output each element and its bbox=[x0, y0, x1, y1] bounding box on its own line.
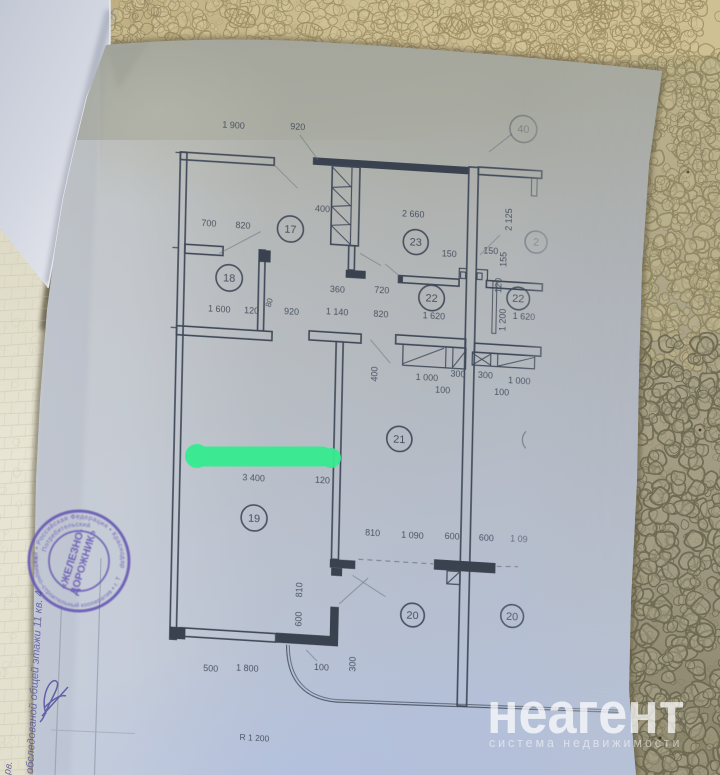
svg-text:120: 120 bbox=[244, 305, 259, 316]
svg-text:120: 120 bbox=[493, 278, 503, 294]
svg-text:300: 300 bbox=[478, 370, 493, 381]
svg-text:18: 18 bbox=[223, 272, 235, 285]
svg-text:150: 150 bbox=[483, 245, 498, 256]
svg-text:23: 23 bbox=[410, 236, 422, 249]
svg-text:500: 500 bbox=[203, 663, 218, 674]
svg-text:1 000: 1 000 bbox=[416, 372, 439, 383]
svg-text:1 900: 1 900 bbox=[222, 119, 245, 130]
svg-text:920: 920 bbox=[284, 306, 299, 317]
svg-text:120: 120 bbox=[315, 475, 330, 486]
svg-text:R 1 200: R 1 200 bbox=[239, 732, 269, 744]
svg-text:19: 19 bbox=[248, 512, 260, 525]
svg-text:810: 810 bbox=[365, 528, 380, 539]
svg-text:2 125: 2 125 bbox=[503, 208, 513, 231]
svg-text:рв.: рв. bbox=[2, 760, 15, 775]
svg-text:2 660: 2 660 bbox=[402, 208, 425, 219]
svg-text:300: 300 bbox=[347, 656, 357, 672]
svg-text:600: 600 bbox=[445, 531, 460, 542]
svg-text:система недвижимости: система недвижимости bbox=[489, 736, 682, 750]
svg-text:1 090: 1 090 bbox=[401, 530, 424, 541]
svg-text:820: 820 bbox=[373, 309, 388, 320]
svg-text:3 400: 3 400 bbox=[242, 472, 265, 483]
svg-text:1 800: 1 800 bbox=[236, 663, 259, 674]
svg-text:810: 810 bbox=[294, 582, 304, 598]
svg-text:300: 300 bbox=[450, 369, 465, 380]
svg-text:100: 100 bbox=[494, 387, 509, 398]
svg-text:600: 600 bbox=[479, 532, 494, 543]
svg-text:20: 20 bbox=[406, 610, 418, 623]
svg-text:820: 820 bbox=[235, 220, 250, 231]
svg-text:21: 21 bbox=[393, 433, 405, 446]
svg-text:720: 720 bbox=[374, 285, 389, 296]
svg-text:1 620: 1 620 bbox=[423, 310, 446, 321]
svg-text:100: 100 bbox=[435, 384, 450, 395]
svg-text:700: 700 bbox=[201, 218, 216, 229]
svg-text:1 140: 1 140 bbox=[326, 306, 349, 317]
svg-text:100: 100 bbox=[314, 662, 329, 673]
svg-text:155: 155 bbox=[498, 252, 508, 268]
svg-text:400: 400 bbox=[369, 366, 379, 382]
svg-text:360: 360 bbox=[330, 284, 345, 295]
svg-text:17: 17 bbox=[284, 223, 296, 236]
svg-text:920: 920 bbox=[290, 121, 305, 132]
svg-text:600: 600 bbox=[293, 611, 303, 627]
svg-text:20: 20 bbox=[506, 611, 518, 624]
svg-text:22: 22 bbox=[425, 292, 437, 305]
svg-text:1 600: 1 600 bbox=[208, 303, 231, 314]
svg-text:1 200: 1 200 bbox=[497, 308, 507, 331]
svg-text:150: 150 bbox=[442, 248, 457, 259]
svg-text:400: 400 bbox=[315, 203, 330, 214]
